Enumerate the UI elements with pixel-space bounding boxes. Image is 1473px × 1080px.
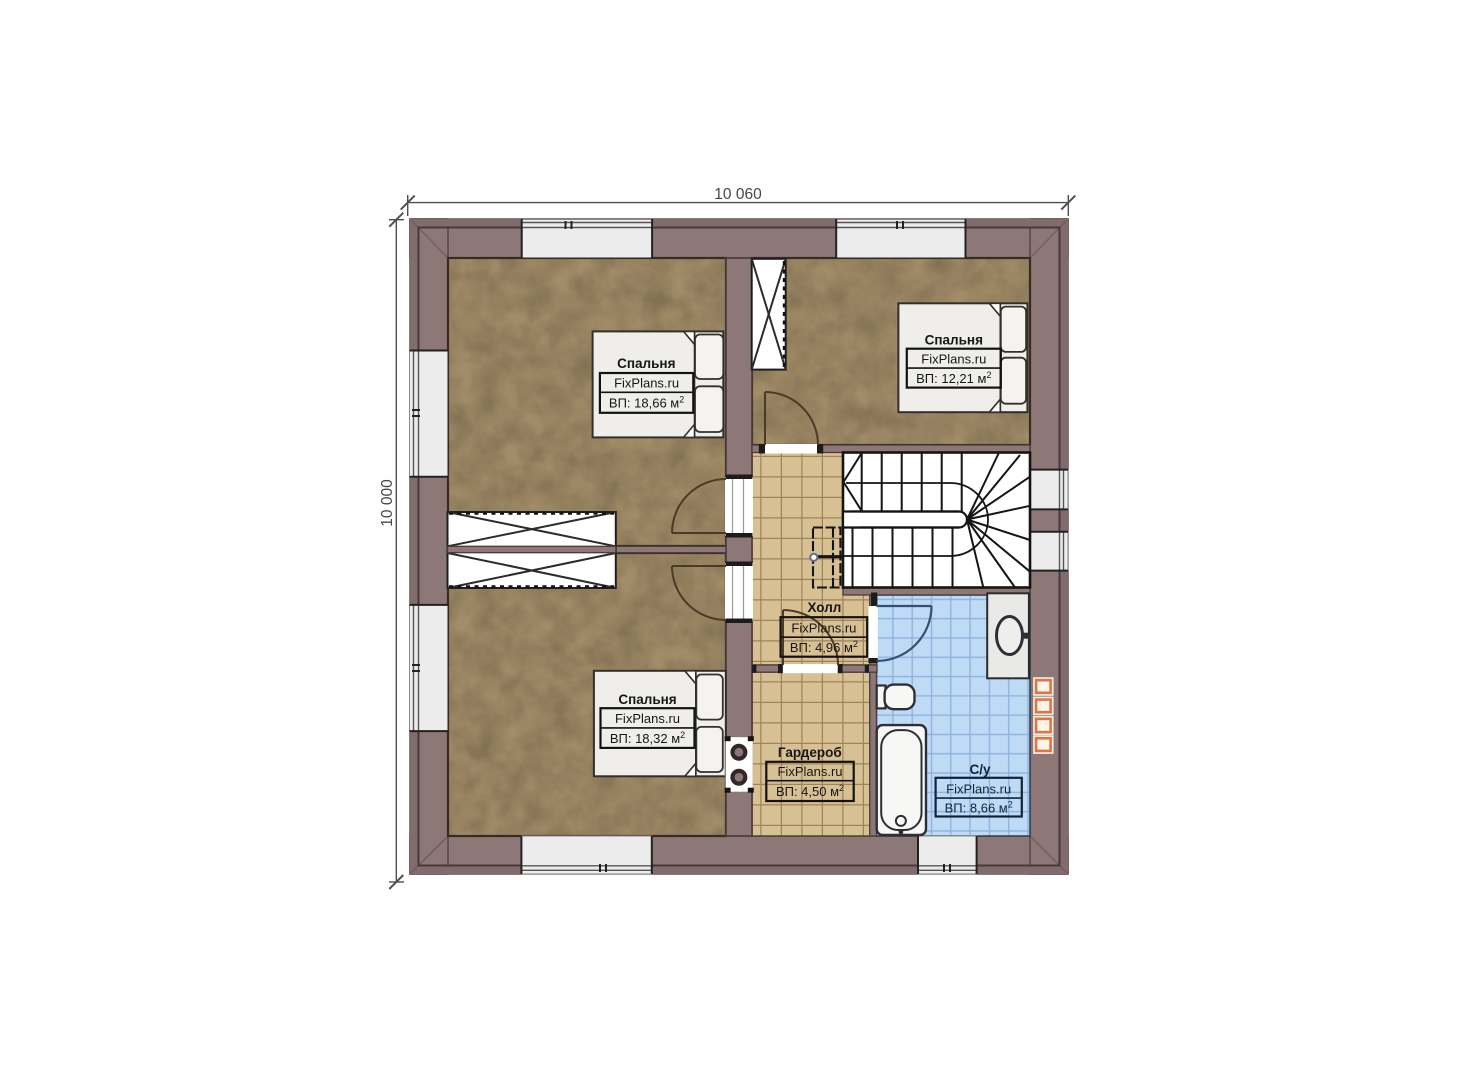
- svg-text:FixPlans.ru: FixPlans.ru: [777, 764, 842, 779]
- svg-text:ВП: 4,50 м2: ВП: 4,50 м2: [776, 783, 844, 799]
- svg-text:Холл: Холл: [807, 600, 841, 615]
- svg-text:Спальня: Спальня: [618, 692, 676, 707]
- svg-text:Спальня: Спальня: [925, 332, 983, 347]
- svg-text:FixPlans.ru: FixPlans.ru: [614, 376, 679, 391]
- svg-text:FixPlans.ru: FixPlans.ru: [791, 620, 856, 635]
- svg-text:ВП: 12,21 м2: ВП: 12,21 м2: [916, 370, 991, 386]
- svg-text:FixPlans.ru: FixPlans.ru: [946, 781, 1011, 796]
- svg-text:FixPlans.ru: FixPlans.ru: [615, 711, 680, 726]
- svg-text:С/у: С/у: [969, 762, 991, 777]
- svg-text:ВП: 8,66 м2: ВП: 8,66 м2: [945, 800, 1013, 816]
- svg-text:ВП: 18,66 м2: ВП: 18,66 м2: [609, 395, 684, 411]
- svg-text:ВП: 18,32 м2: ВП: 18,32 м2: [610, 730, 685, 746]
- svg-text:Спальня: Спальня: [617, 356, 675, 371]
- svg-text:10 060: 10 060: [714, 186, 762, 203]
- svg-text:ВП: 4,96 м2: ВП: 4,96 м2: [790, 639, 858, 655]
- svg-text:FixPlans.ru: FixPlans.ru: [921, 352, 986, 367]
- svg-text:Гардероб: Гардероб: [778, 745, 842, 760]
- svg-text:10 000: 10 000: [379, 479, 396, 527]
